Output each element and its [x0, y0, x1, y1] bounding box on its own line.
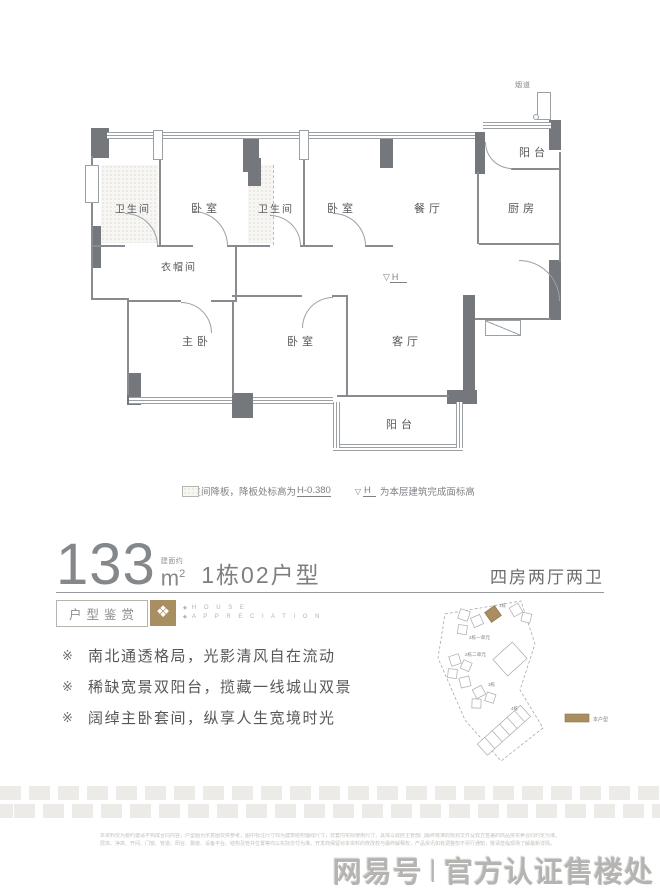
window-band	[483, 122, 551, 129]
watermark-text: 官方认证售楼处	[444, 849, 654, 891]
wall-segment	[227, 245, 270, 247]
diamond-bullet-icon: ◆	[183, 614, 190, 620]
room-label-living: 客厅	[388, 333, 422, 349]
level-letter: H	[390, 272, 408, 283]
building-label: 1栋	[499, 602, 507, 609]
room-label-bathroom2: 卫生间	[256, 201, 294, 216]
door-bedroom3	[302, 297, 333, 328]
wall-segment	[300, 245, 333, 247]
feature-text: 阔绰主卧套间，纵享人生宽境时光	[88, 707, 336, 728]
feature-item: ※ 南北通透格局，光影清风自在流动	[62, 647, 352, 664]
diamond-bullet-icon: ◆	[183, 605, 190, 611]
feature-text: 南北通透格局，光影清风自在流动	[88, 645, 336, 666]
feature-list: ※ 南北通透格局，光影清风自在流动 ※ 稀缺宽景双阳台，揽藏一线城山双景 ※ 阔…	[62, 647, 352, 740]
wall-segment	[475, 132, 485, 174]
wall-segment	[127, 300, 129, 395]
room-label-master: 主卧	[178, 333, 212, 349]
room-label-kitchen: 厨房	[504, 200, 538, 216]
door-bathroom2	[270, 215, 301, 246]
wall-segment	[232, 300, 234, 395]
watermark-divider: |	[423, 856, 444, 884]
flue-dot	[533, 114, 539, 120]
level-triangle-icon: ▽	[355, 487, 361, 496]
building-label: 3栋	[488, 681, 496, 688]
building-label: 2栋一单元	[469, 634, 490, 641]
room-label-bathroom1: 卫生间	[113, 201, 151, 216]
wall-segment	[479, 243, 561, 245]
area-note: 建面约	[161, 558, 184, 565]
layout-description: 四房两厅两卫	[490, 569, 604, 586]
area-unit: 建面约 m2	[161, 558, 185, 587]
section-title-box: 户型鉴赏	[56, 600, 148, 627]
room-label-balcony-top: 阳台	[515, 144, 549, 160]
room-label-bedroom3: 卧室	[283, 333, 317, 349]
disclaimer-line1: 本资料仅为要约邀请不构成合同内容，户型图为示意图仅供参考，图中标注尺寸均为建筑结…	[100, 833, 558, 841]
wall-segment	[91, 298, 129, 300]
sitemap-legend-label: 本户型	[593, 716, 608, 723]
window-band	[129, 397, 232, 404]
plan-box	[153, 130, 163, 160]
window-band	[456, 402, 463, 448]
building-label: 4栋	[511, 705, 519, 712]
wall-segment	[346, 295, 348, 395]
wall-segment	[511, 168, 559, 170]
ac-platform-right	[485, 320, 521, 336]
room-label-dining: 餐厅	[410, 200, 444, 216]
level-triangle-icon: ▽	[383, 272, 390, 282]
reference-mark: ※	[62, 648, 88, 664]
wall-segment	[477, 172, 479, 244]
wall-segment	[232, 393, 253, 418]
building-1-highlight	[485, 606, 502, 623]
section-row: 户型鉴赏 ❖ ◆H O U S E ◆A P P R E C I A T I O…	[56, 600, 322, 626]
watermark: 网易号 | 官方认证售楼处	[333, 849, 654, 891]
legend-note1-value: H-0.380	[297, 485, 331, 497]
section-english: ◆H O U S E ◆A P P R E C I A T I O N	[183, 604, 322, 622]
window-band	[333, 402, 340, 448]
feature-text: 稀缺宽景双阳台，揽藏一线城山双景	[88, 676, 352, 697]
wall-segment	[157, 245, 193, 247]
section-en-word1: H O U S E	[192, 605, 247, 611]
watermark-brand: 网易号	[333, 849, 423, 891]
legend-note1-text: 卫生间降板，降板处标高为	[182, 484, 296, 498]
plan-legend: 卫生间降板，降板处标高为 H-0.380 ▽ H 为本层建筑完成面标高	[182, 483, 522, 499]
wall-segment	[248, 158, 261, 186]
diamond-ornament-icon: ❖	[150, 600, 176, 626]
section-en-word2: A P P R E C I A T I O N	[192, 614, 323, 620]
room-label-balcony-bottom: 阳台	[382, 416, 416, 432]
plan-box	[299, 130, 309, 160]
wall-segment	[93, 245, 125, 247]
room-label-bedroom2: 卧室	[323, 200, 357, 216]
legend-note2-letter: H	[363, 485, 376, 497]
wall-segment	[337, 395, 449, 397]
door-bedroom2	[333, 213, 366, 246]
room-label-bedroom1: 卧室	[187, 200, 221, 216]
room-label-cloakroom: 衣帽间	[159, 259, 197, 274]
wall-segment	[559, 152, 561, 262]
page: 卫生间 卧室 卫生间 卧室 餐厅 厨房 阳台 衣帽间 主卧 卧室 客厅 阳台 ▽…	[0, 0, 660, 892]
sitemap-legend-swatch	[565, 714, 589, 722]
disclaimer: 本资料仅为要约邀请不构成合同内容，户型图为示意图仅供参考，图中标注尺寸均为建筑结…	[100, 833, 558, 850]
building-label: 2栋二单元	[465, 651, 486, 658]
level-mark: ▽H	[383, 272, 407, 283]
area-number: 133	[56, 542, 156, 588]
wall-segment	[232, 295, 302, 297]
flue-shaft	[537, 92, 551, 120]
feature-item: ※ 阔绰主卧套间，纵享人生宽境时光	[62, 709, 352, 726]
decorative-band	[0, 784, 660, 824]
site-buildings	[447, 603, 531, 755]
door-bedroom1	[193, 211, 228, 246]
band-row	[0, 804, 660, 818]
window-band	[253, 397, 333, 404]
wall-segment	[129, 300, 181, 302]
ac-platform-left	[85, 165, 99, 203]
door-master	[181, 302, 212, 333]
wall-segment	[463, 295, 475, 400]
window-band	[333, 444, 463, 451]
feature-item: ※ 稀缺宽景双阳台，揽藏一线城山双景	[62, 678, 352, 695]
wall-segment	[365, 245, 393, 247]
title-bar: 133 建面约 m2 1栋02户型 四房两厅两卫	[56, 528, 604, 588]
hatch-swatch-icon	[182, 486, 199, 497]
plan-name: 1栋02户型	[201, 564, 320, 587]
flue-label: 烟道	[515, 80, 531, 90]
disclaimer-line2: 层高、净高、开间、门窗、管道、阳台、飘窗、设备平台、结构及管井位置等均以实际交付…	[100, 841, 558, 849]
reference-mark: ※	[62, 679, 88, 695]
unit-m2: m2	[161, 565, 185, 587]
site-map: 1栋 2栋一单元 2栋二单元 3栋 4栋 本户型	[425, 598, 625, 793]
floor-plan: 卫生间 卧室 卫生间 卧室 餐厅 厨房 阳台 衣帽间 主卧 卧室 客厅 阳台 ▽…	[85, 108, 565, 458]
wall-segment	[235, 247, 237, 302]
band-row	[0, 786, 660, 800]
legend-note2-text: 为本层建筑完成面标高	[380, 484, 475, 498]
title-divider	[56, 592, 604, 593]
reference-mark: ※	[62, 710, 88, 726]
door-balcony-top	[485, 142, 512, 169]
